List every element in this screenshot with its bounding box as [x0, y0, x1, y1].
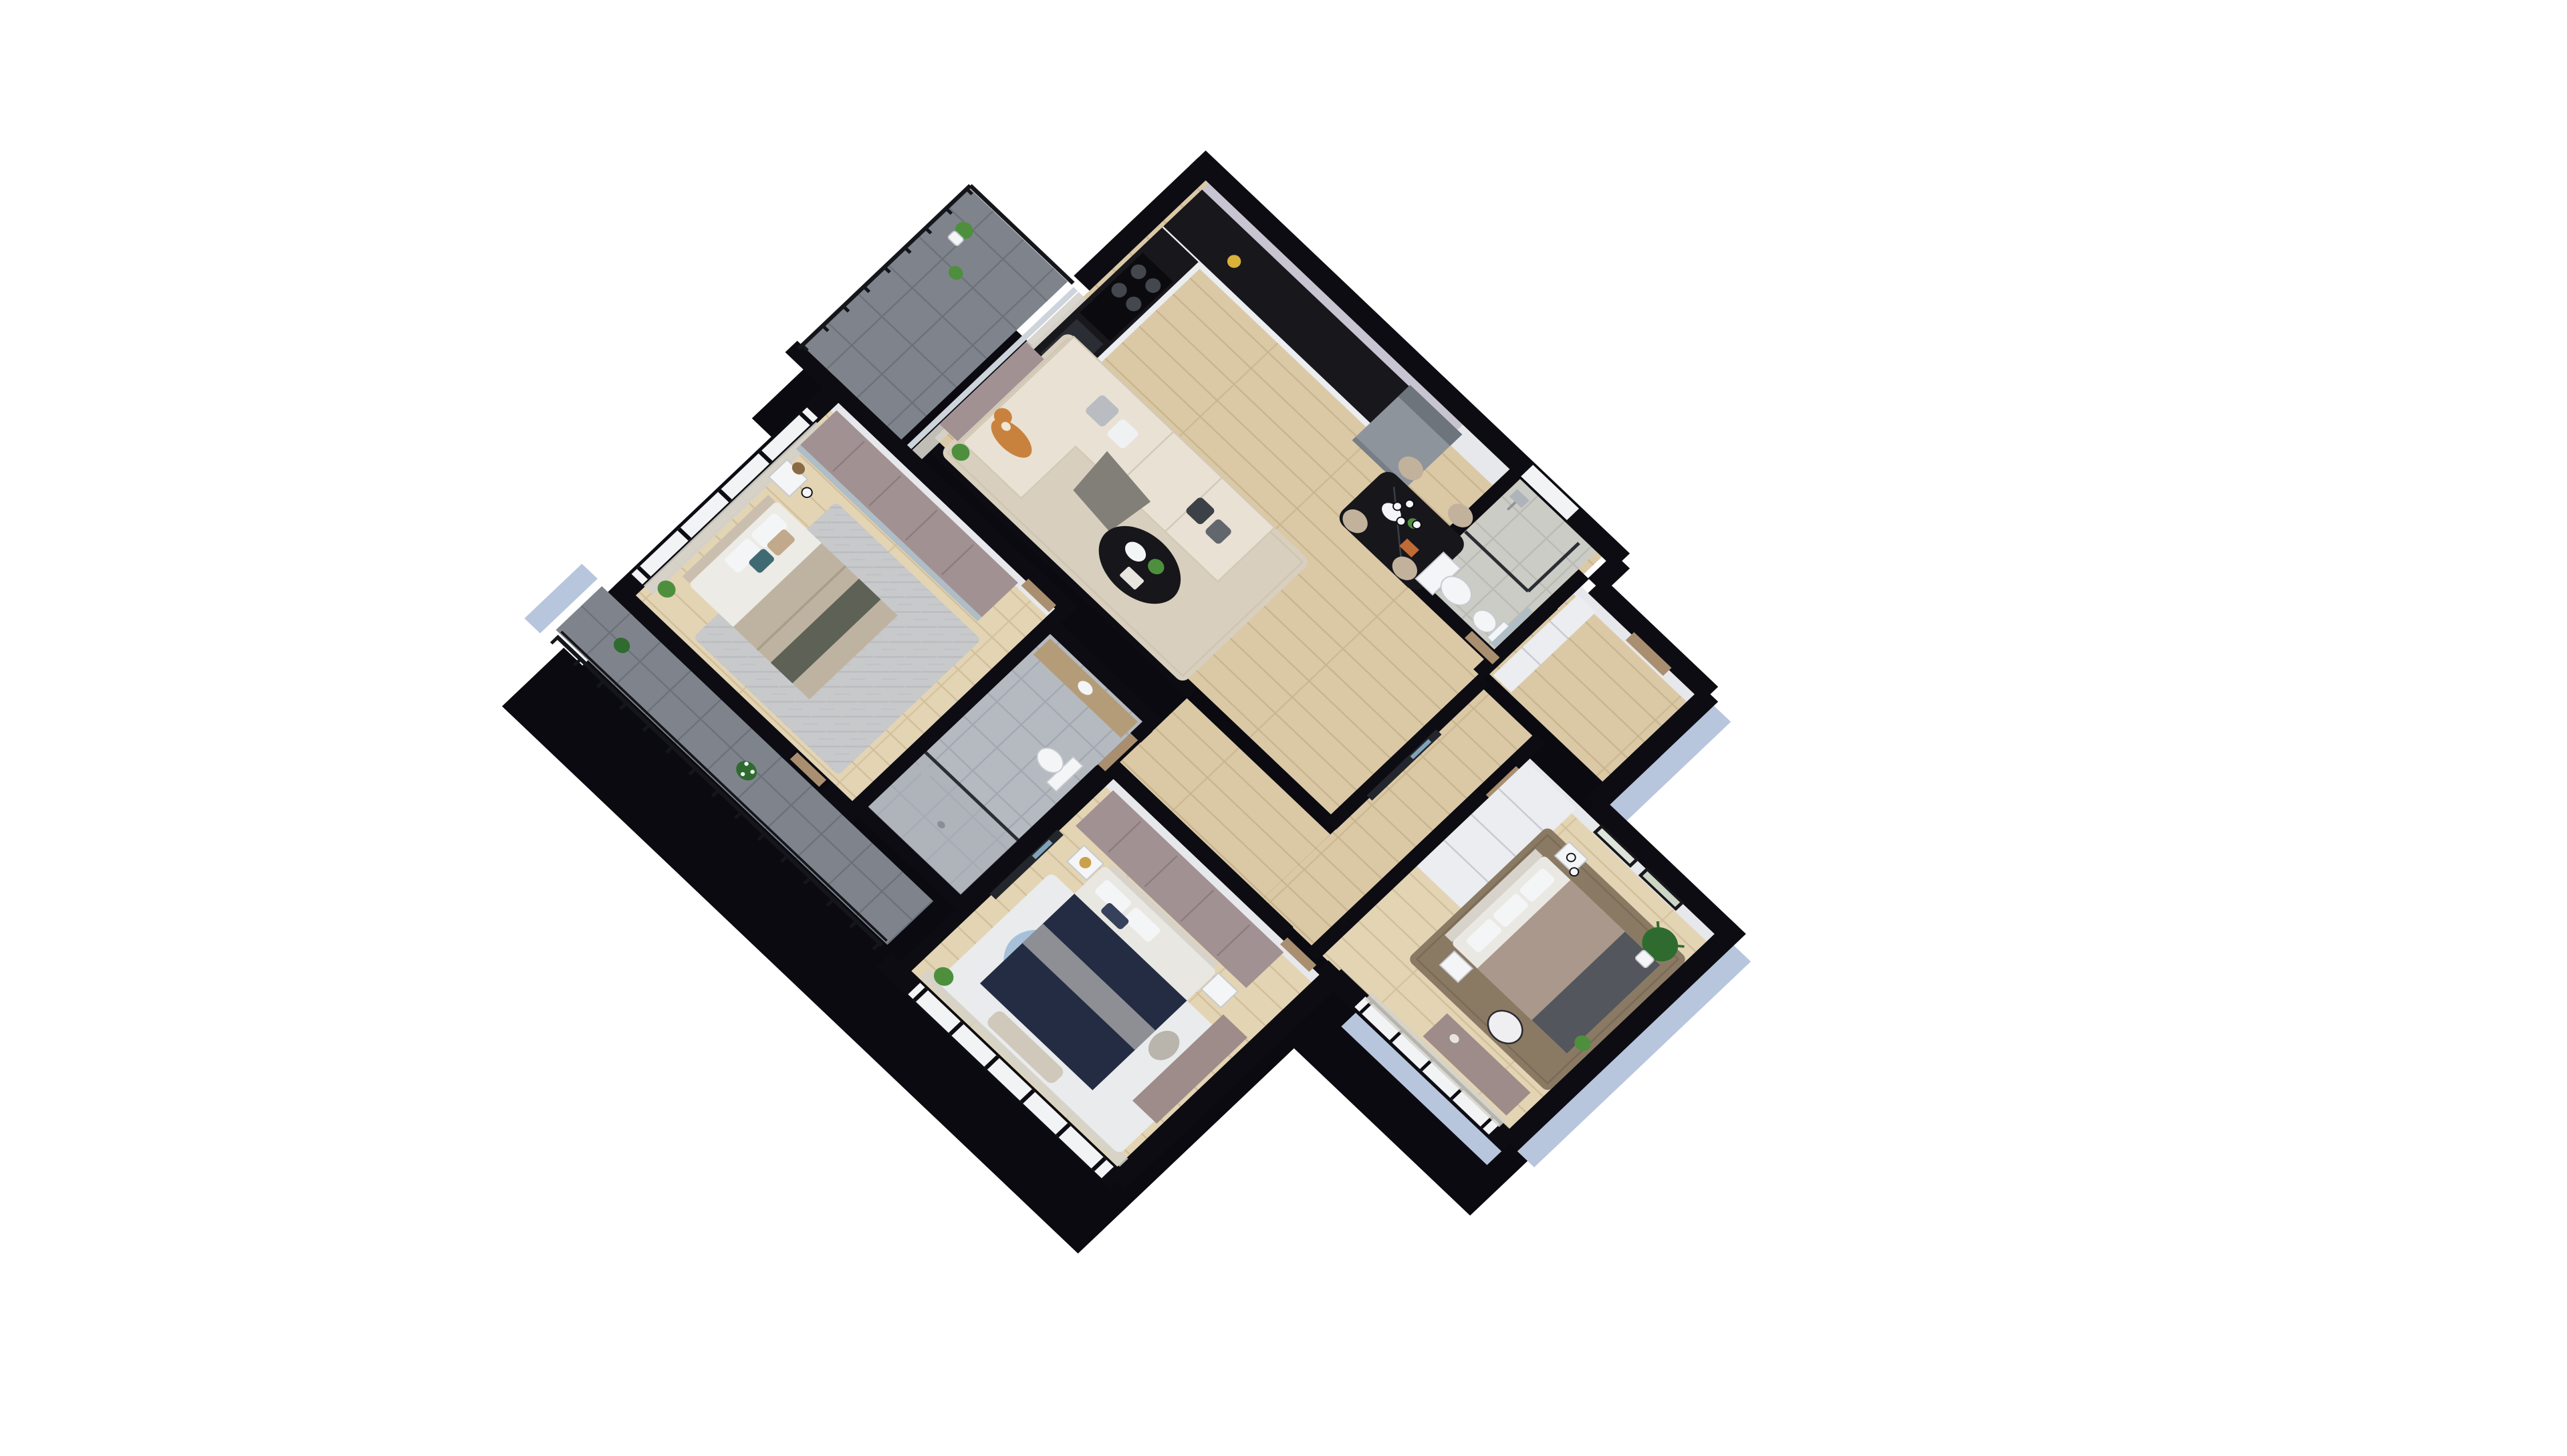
render-root — [457, 59, 1897, 1427]
floorplan-svg — [422, 36, 1917, 1456]
page: { "title": "3D apartment floor plan rend… — [0, 0, 2567, 1444]
wall-bath2-east-a — [1136, 727, 1148, 738]
apartment-3d-floorplan — [749, 374, 1658, 1116]
